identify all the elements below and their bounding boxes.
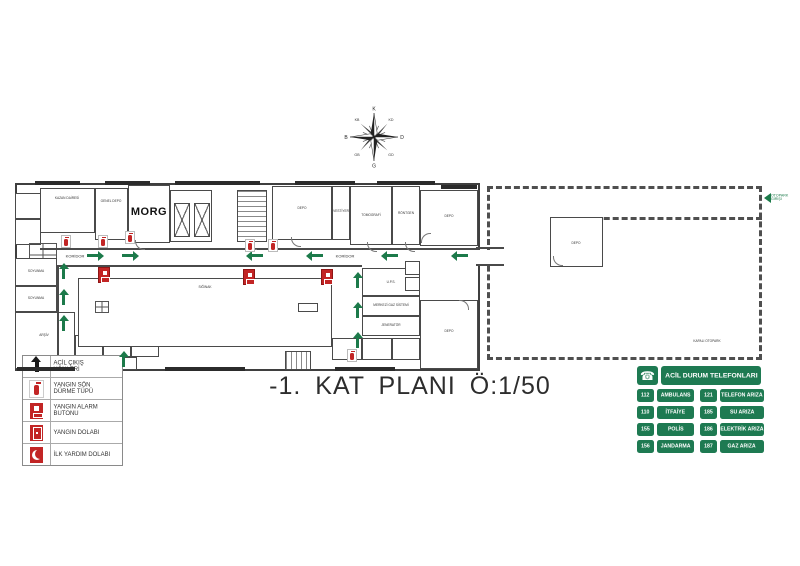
exit-direction-arrow [62,269,65,279]
exit-direction-arrow [356,338,359,348]
floor-plan: KAZAN DAİRESİ GENEL DEPO MORG DEPO VESTİ… [15,183,765,373]
room-label: VESTİYER [333,209,349,213]
fire-cabinet-icon [23,422,51,443]
fire-extinguisher-icon [268,239,278,252]
room-label: DEPO [297,206,306,210]
wc-stall [362,338,392,360]
room-label: TOMOGRAFİ [361,213,380,217]
phone-number: 187 [700,440,717,453]
exit-direction-arrow [87,254,98,257]
exit-direction-arrow [62,295,65,305]
compass-label-sw: GB [354,153,360,157]
hall-fixture [95,301,109,313]
exit-stairs [285,351,311,370]
fire-alarm-icon [98,267,110,283]
exit-direction-arrow [457,254,468,257]
wall-segment [335,367,395,371]
fire-extinguisher-icon [347,349,357,362]
room-label: JENERATÖR [381,323,400,327]
exit-direction-arrow [356,278,359,288]
parking-hall-outline [487,186,762,360]
compass-rose: K D G B KD GD GB KB [342,105,406,169]
wall-segment [35,181,80,185]
parking-entrance-marker: OTOPARK GİRİŞİ [764,189,800,207]
phones-title: ACİL DURUM TELEFONLARI [661,366,761,385]
room-genel-depo [95,188,128,240]
legend-row: YANGIN SÖN DÜRME TÜPÜ [23,378,122,400]
corridor-label: KORİDOR [66,254,85,259]
phone-label: GAZ ARIZA [720,440,764,453]
exit-direction-arrow [387,254,398,257]
phone-label: POLİS [657,423,694,436]
room-label: KAPALI OTOPARK [693,339,720,343]
phone-label: JANDARMA [657,440,694,453]
corridor-wall [476,247,504,249]
room-label: DEPO [444,329,453,333]
phone-number: 121 [700,389,717,402]
exit-direction-arrow [62,321,65,331]
wall-segment [441,185,477,189]
exit-direction-arrow [356,308,359,318]
staircase [237,190,267,242]
elevator-shaft [174,203,190,237]
phone-label: İTFAİYE [657,406,694,419]
compass-label-west: B [344,135,348,141]
corridor-label: KORİDOR [336,254,355,259]
small-room [405,261,420,275]
room-label: DEPO [444,214,453,218]
room-label: MERKEZİ GAZ SİSTEMİ [373,303,408,307]
legend-panel: ACİL ÇIKIŞ YÖNLERİ YANGIN SÖN DÜRME TÜPÜ… [22,355,123,466]
room-label: SOYUNMA [28,269,44,273]
exit-arrow-left-icon [764,193,771,203]
phones-header: ☎ ACİL DURUM TELEFONLARI [637,366,761,385]
fire-extinguisher-icon [23,378,51,399]
wall-segment [295,181,355,185]
phone-number: 155 [637,423,654,436]
phone-label: AMBULANS [657,389,694,402]
hall-fixture [298,303,318,312]
compass-label-north: K [372,107,376,113]
room-label: U.P.S. [387,280,396,284]
room-label: ARŞİV [39,333,49,337]
fire-extinguisher-icon [125,231,135,244]
exit-direction-arrow [312,254,323,257]
corridor-connector [476,250,504,264]
fire-alarm-icon [243,269,255,285]
phone-number: 110 [637,406,654,419]
room-label: GENEL DEPO [101,199,122,203]
legend-row: İLK YARDIM DOLABI [23,444,122,465]
legend-label: YANGIN ALARM BUTONU [51,402,111,420]
compass-label-se: GD [388,153,394,157]
phone-label: TELEFON ARIZA [720,389,764,402]
legend-row: YANGIN ALARM BUTONU [23,400,122,422]
phone-icon: ☎ [637,366,658,385]
wall-segment [165,367,245,371]
emergency-phones-panel: ☎ ACİL DURUM TELEFONLARI 112 AMBULANS 12… [637,366,761,457]
small-room [15,219,41,245]
fire-alarm-button-icon [23,400,51,421]
phone-number: 156 [637,440,654,453]
phone-row: 156 JANDARMA 187 GAZ ARIZA [637,440,761,453]
room-depo-1 [272,186,332,240]
room-label: KAZAN DAİRESİ [55,196,79,200]
room-label-morg: MORG [131,206,167,218]
phone-row: 112 AMBULANS 121 TELEFON ARIZA [637,389,761,402]
fire-extinguisher-icon [61,235,71,248]
evacuation-plan-page: { "title": "-1. KAT PLANI Ö:1/50", "comp… [0,0,800,566]
wc-stall [392,338,420,360]
fire-extinguisher-icon [245,239,255,252]
room-rontgen [392,186,420,245]
first-aid-cabinet-icon [23,444,51,465]
wall-segment [105,181,150,185]
corridor-wall [57,265,59,357]
room-vestiyer [332,186,350,240]
phone-number: 186 [700,423,717,436]
legend-row: YANGIN DOLABI [23,422,122,444]
phone-row: 110 İTFAİYE 185 SU ARIZA [637,406,761,419]
corridor-wall [476,264,504,266]
compass-label-south: G [372,164,376,170]
exit-direction-arrow [122,254,133,257]
legend-label: İLK YARDIM DOLABI [51,446,111,464]
fire-extinguisher-icon [98,235,108,248]
compass-label-ne: KD [389,118,394,122]
small-room [405,277,420,291]
page-title: -1. KAT PLANI Ö:1/50 [255,372,565,401]
phone-number: 112 [637,389,654,402]
phone-label: SU ARIZA [720,406,764,419]
parking-entrance-label: OTOPARK GİRİŞİ [771,194,785,202]
legend-label: YANGIN SÖN DÜRME TÜPÜ [51,380,111,398]
elevator-shaft [194,203,210,237]
room-label: SIĞINAK [199,285,212,289]
compass-label-nw: KB [355,118,360,122]
exit-direction-arrow [122,357,125,367]
exit-direction-arrow [252,254,263,257]
room-label: SOYUNMA [28,296,44,300]
fire-alarm-icon [321,269,333,285]
wall-segment [377,181,435,185]
phone-number: 185 [700,406,717,419]
phone-label: ELEKTRİK ARIZA [720,423,764,436]
phone-row: 155 POLİS 186 ELEKTRİK ARIZA [637,423,761,436]
legend-label: YANGIN DOLABI [51,424,111,442]
wall-segment [175,181,260,185]
compass-label-east: D [400,135,404,141]
room-label: DEPO [571,241,580,245]
room-label: RÖNTGEN [398,211,414,215]
wall-segment [17,367,75,371]
room-depo-bottom-right [420,300,478,369]
small-room [15,193,41,219]
room-kazan-dairesi [40,188,95,233]
